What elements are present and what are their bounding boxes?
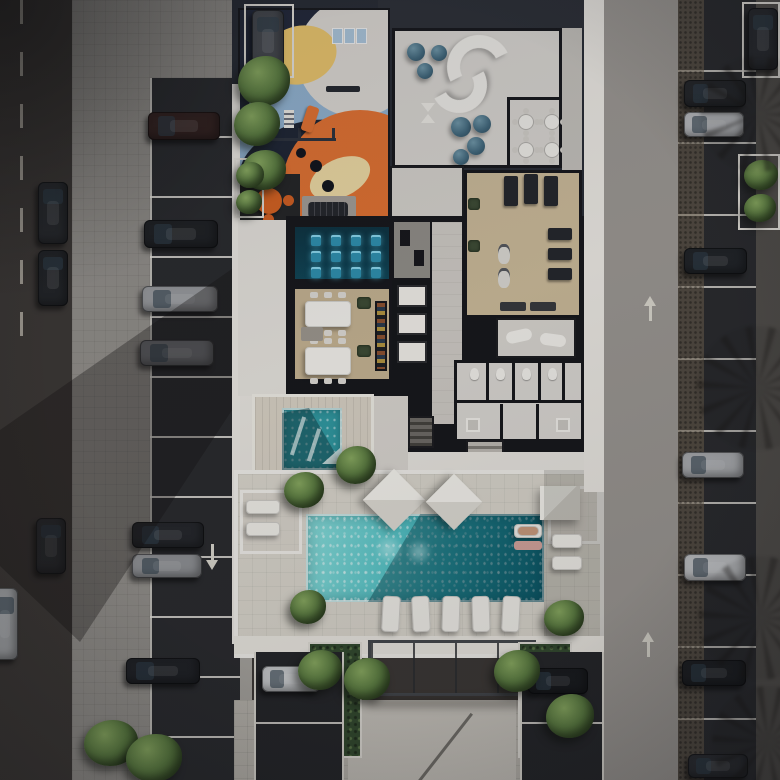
cinema-seat (311, 251, 321, 262)
cinema-seat (351, 235, 361, 246)
cinema-seat (331, 235, 341, 246)
cinema-seat (351, 267, 361, 278)
cafe-table (545, 143, 559, 157)
lane-arrow (642, 632, 654, 658)
pool-lounger (411, 596, 431, 633)
cinema-seat (311, 267, 321, 278)
swimming-pool (306, 514, 544, 602)
toilet (548, 368, 557, 380)
tree (546, 694, 594, 738)
cafe-wall (507, 97, 559, 100)
shower (466, 418, 480, 432)
walk-west-of-core (238, 220, 290, 396)
scene (0, 0, 780, 780)
ottoman (407, 43, 425, 61)
shower (556, 418, 570, 432)
pool-lounger (381, 596, 401, 633)
partition (512, 362, 515, 402)
partition (500, 404, 503, 440)
gym-annex (496, 318, 576, 358)
lane-arrow (644, 296, 656, 322)
tree (298, 650, 342, 690)
toilet (496, 368, 505, 380)
vestibule-inset (400, 230, 410, 246)
car-west-2 (144, 220, 218, 248)
partition (538, 362, 541, 402)
car-east-4 (682, 452, 744, 478)
cafe-table (545, 115, 559, 129)
roof-strip-north (378, 0, 604, 30)
dining-room (292, 286, 392, 382)
lane-arrow (206, 544, 218, 570)
ottoman (431, 45, 447, 61)
pool-lounger (441, 596, 460, 633)
cabana-lounger (552, 534, 582, 548)
cabana-lounger (246, 522, 280, 536)
cinema-seat (371, 251, 381, 262)
exercise-bike (498, 244, 510, 264)
pad-stall-line (256, 722, 342, 724)
pool-lounger (501, 596, 521, 633)
mural-window-bar (332, 28, 343, 44)
tree (344, 658, 390, 700)
car-street-1 (38, 182, 68, 244)
ottoman (473, 115, 491, 133)
gym-mat (530, 302, 556, 311)
partition (456, 400, 582, 403)
gym (464, 170, 582, 318)
plant (468, 198, 480, 210)
plant (357, 345, 371, 357)
play-pouf (296, 148, 306, 158)
toilet (522, 368, 531, 380)
spa-lounger (505, 327, 533, 344)
tree (494, 650, 540, 692)
pool-lounger (471, 596, 490, 633)
cafe-wall (507, 97, 510, 165)
mural-window-bar (344, 28, 355, 44)
tree (336, 446, 376, 484)
entrance-walkway (348, 700, 516, 780)
side-table (421, 103, 435, 112)
play-frame-leg (332, 128, 335, 141)
tree (284, 472, 324, 508)
cafe-table (519, 115, 533, 129)
tree (544, 600, 584, 636)
cabana-lounger (246, 500, 280, 514)
street-west-centerline (20, 0, 23, 360)
kids-stool (283, 195, 294, 206)
weight-bench (548, 248, 572, 260)
weight-bench (548, 228, 572, 240)
car-west-6 (132, 554, 202, 578)
partition (486, 362, 489, 402)
cinema-room (292, 224, 392, 282)
tree (236, 162, 264, 188)
spa-lounger (539, 332, 566, 348)
treadmill (524, 174, 538, 204)
play-pouf (310, 160, 322, 172)
car-street-4 (0, 588, 18, 660)
dining-table (305, 301, 351, 327)
hall-north (390, 166, 464, 220)
plant (357, 297, 371, 309)
car-east-3 (684, 248, 747, 274)
play-ladder (284, 110, 294, 128)
pool-reflection (404, 540, 434, 564)
toilet (470, 368, 479, 380)
walk-spa-east (374, 396, 408, 470)
cafe-table (519, 143, 533, 157)
elevator-cab (397, 313, 427, 335)
partition (536, 404, 539, 440)
cinema-seat (371, 267, 381, 278)
gym-mat (500, 302, 526, 311)
play-frame-leg (298, 128, 301, 141)
terrace-east (562, 28, 582, 172)
play-pouf (322, 180, 334, 192)
tree (238, 56, 290, 106)
cinema-seat (311, 235, 321, 246)
towel (514, 541, 542, 550)
elevator-vestibule (394, 222, 430, 278)
vestibule-inset (414, 250, 424, 266)
treadmill (504, 176, 518, 206)
lounge-room (392, 28, 562, 168)
elevator-cab (397, 285, 427, 307)
cabana-lounger (552, 556, 582, 570)
car-west-1 (148, 112, 220, 140)
rug (301, 327, 323, 341)
tree (290, 590, 326, 624)
cinema-seat (331, 267, 341, 278)
ottoman (417, 63, 433, 79)
treadmill (544, 176, 558, 206)
ottoman (453, 149, 469, 165)
exercise-bike (498, 268, 510, 288)
bookshelf (375, 301, 387, 371)
partition (562, 362, 565, 402)
tree (236, 190, 262, 214)
cinema-seat (371, 235, 381, 246)
tree (744, 194, 776, 222)
sunbather (518, 527, 538, 535)
stairs-core (408, 416, 434, 448)
tree (126, 734, 182, 780)
ottoman (451, 117, 471, 137)
play-bench (326, 86, 360, 92)
mural-window-bar (356, 28, 367, 44)
car-west-7 (126, 658, 200, 684)
sidewalk-east (604, 0, 678, 780)
cinema-seat (331, 251, 341, 262)
tree (234, 102, 280, 146)
dining-table (305, 347, 351, 375)
pool-reflection (372, 536, 406, 562)
car-street-2 (38, 250, 68, 306)
elevator-cab (397, 341, 427, 363)
weight-bench (548, 268, 572, 280)
walk-west-lower (240, 396, 252, 472)
plant (468, 240, 480, 252)
parapet-east (584, 0, 604, 492)
canopy-shadow (368, 698, 536, 708)
cinema-seat (351, 251, 361, 262)
ottoman (467, 137, 485, 155)
